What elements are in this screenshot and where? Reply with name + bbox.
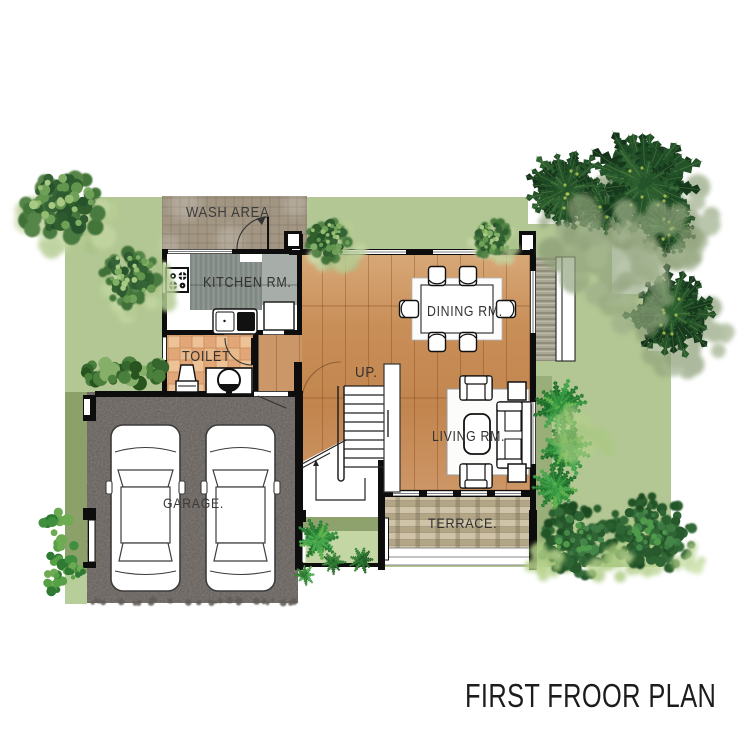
svg-text:LIVING RM.: LIVING RM. <box>432 428 505 444</box>
svg-text:TERRACE.: TERRACE. <box>428 515 497 531</box>
svg-text:TOILET: TOILET <box>182 348 231 364</box>
svg-text:GARAGE.: GARAGE. <box>163 495 224 511</box>
svg-text:WASH AREA: WASH AREA <box>186 204 270 220</box>
svg-text:DINING RM.: DINING RM. <box>427 303 503 319</box>
svg-text:KITCHEN RM.: KITCHEN RM. <box>203 274 292 290</box>
svg-text:FIRST FROOR PLAN: FIRST FROOR PLAN <box>465 678 716 715</box>
svg-text:UP.: UP. <box>355 363 378 380</box>
